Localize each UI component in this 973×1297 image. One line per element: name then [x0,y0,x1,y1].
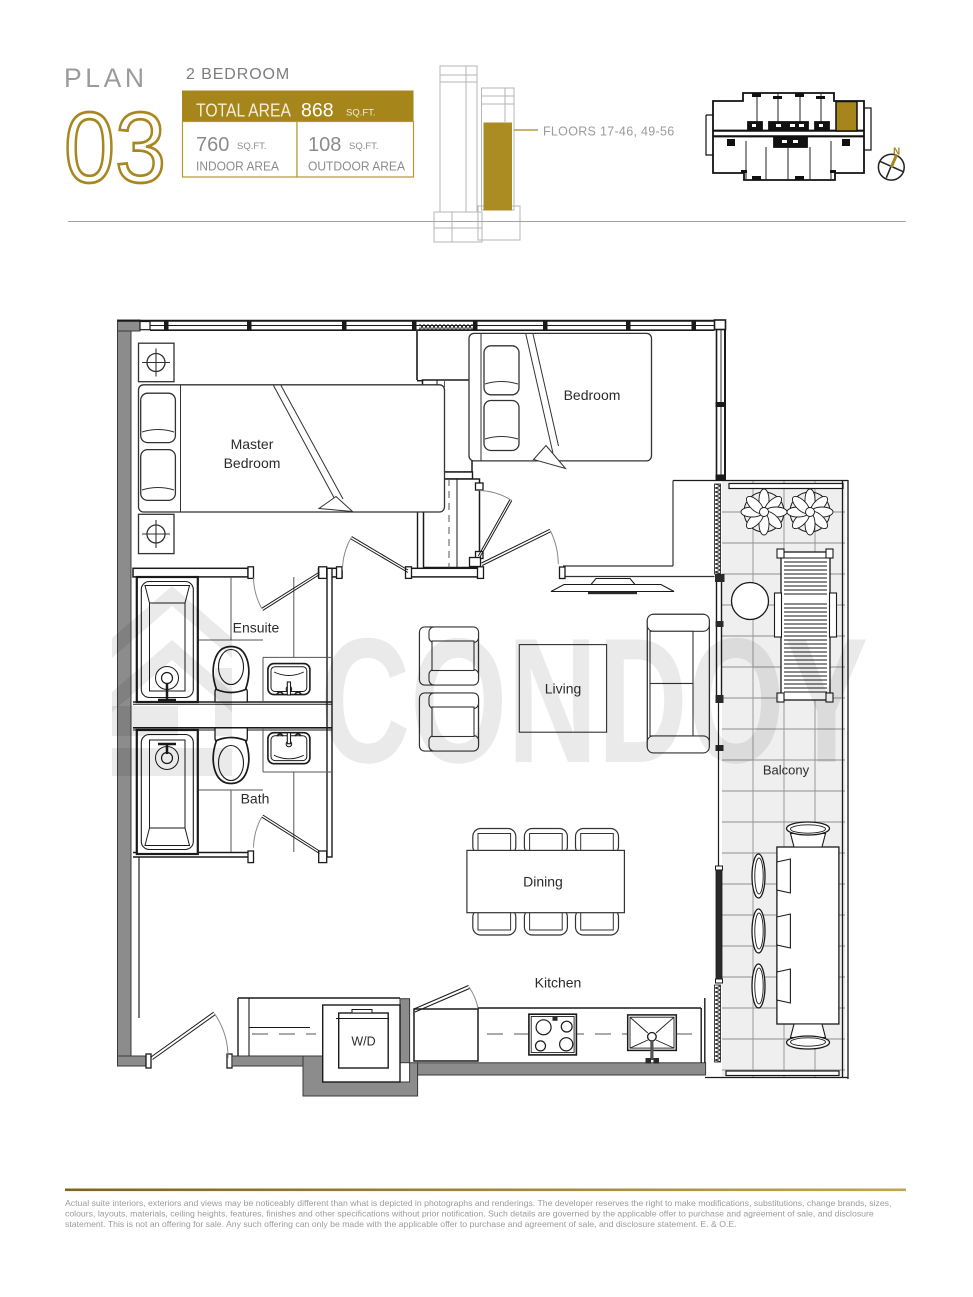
svg-text:Actual suite interiors, exteri: Actual suite interiors, exteriors and vi… [65,1198,891,1208]
svg-text:868: 868 [301,100,334,122]
svg-text:PLAN: PLAN [64,63,148,93]
svg-text:FLOORS 17-46, 49-56: FLOORS 17-46, 49-56 [543,125,674,139]
svg-text:INDOOR AREA: INDOOR AREA [196,159,279,174]
svg-text:760: 760 [196,134,229,156]
svg-text:Bedroom: Bedroom [224,455,281,471]
svg-text:2 BEDROOM: 2 BEDROOM [186,66,290,83]
svg-text:Dining: Dining [523,874,563,890]
svg-text:SQ.FT.: SQ.FT. [346,108,376,119]
svg-text:W/D: W/D [351,1035,375,1049]
svg-text:108: 108 [308,134,341,156]
svg-text:Bedroom: Bedroom [564,387,621,403]
svg-text:SQ.FT.: SQ.FT. [349,141,379,152]
svg-text:03: 03 [64,92,166,204]
svg-text:statement. This is not an offe: statement. This is not an offering for s… [65,1219,737,1229]
svg-text:Kitchen: Kitchen [535,975,582,991]
svg-text:Master: Master [231,436,274,452]
svg-text:OUTDOOR AREA: OUTDOOR AREA [308,159,405,174]
svg-text:SQ.FT.: SQ.FT. [237,141,267,152]
svg-text:colours, layouts, materials, c: colours, layouts, materials, ceiling hei… [65,1208,874,1218]
svg-text:N: N [893,147,900,158]
svg-text:CONDOY: CONDOY [320,601,868,800]
svg-text:TOTAL AREA: TOTAL AREA [196,100,292,121]
svg-text:Bath: Bath [241,791,270,807]
svg-text:Ensuite: Ensuite [233,620,280,636]
